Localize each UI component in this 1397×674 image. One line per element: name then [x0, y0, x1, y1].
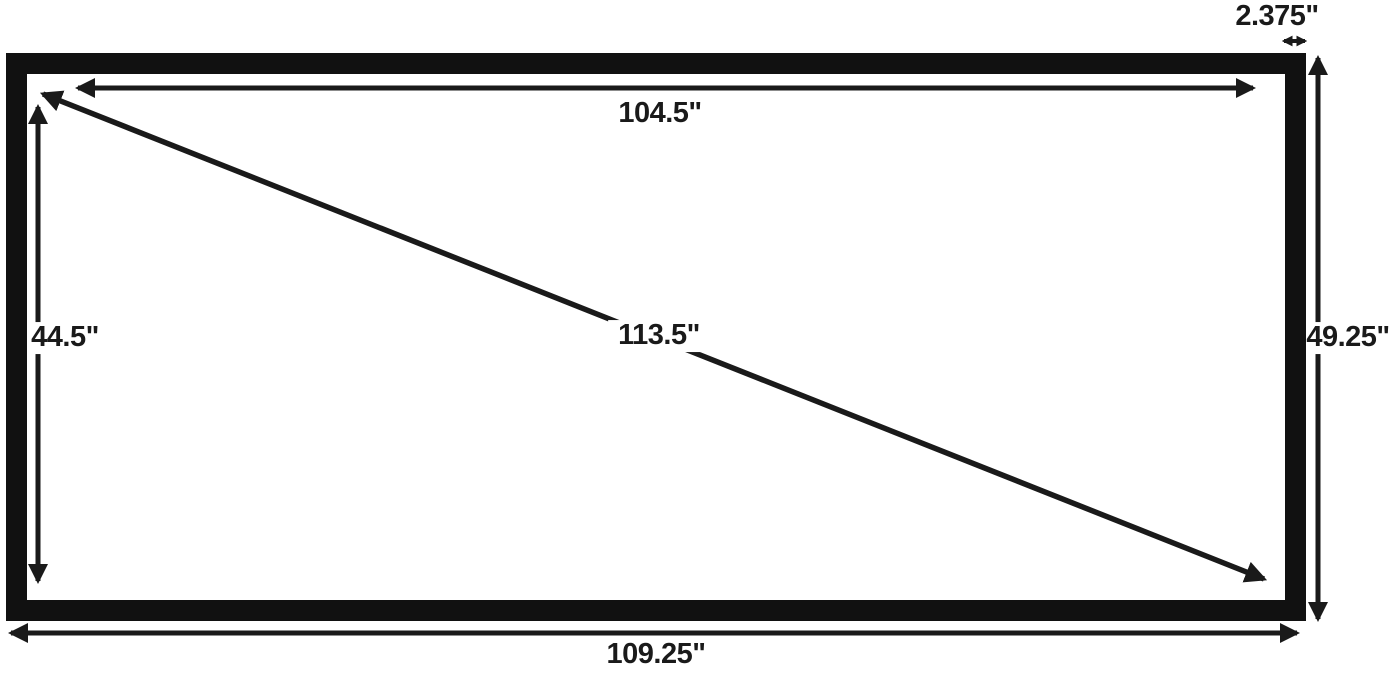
outer-width-label: 109.25"	[607, 639, 706, 671]
frame-border-width-label: 2.375"	[1235, 1, 1318, 33]
diagonal-label: 113.5"	[608, 320, 710, 352]
screen-dimension-diagram: 104.5" 44.5" 113.5" 49.25" 2.375" 109.25…	[0, 0, 1397, 674]
inner-height-label: 44.5"	[31, 322, 99, 354]
outer-height-label: 49.25"	[1306, 322, 1389, 354]
inner-width-label: 104.5"	[618, 98, 701, 130]
